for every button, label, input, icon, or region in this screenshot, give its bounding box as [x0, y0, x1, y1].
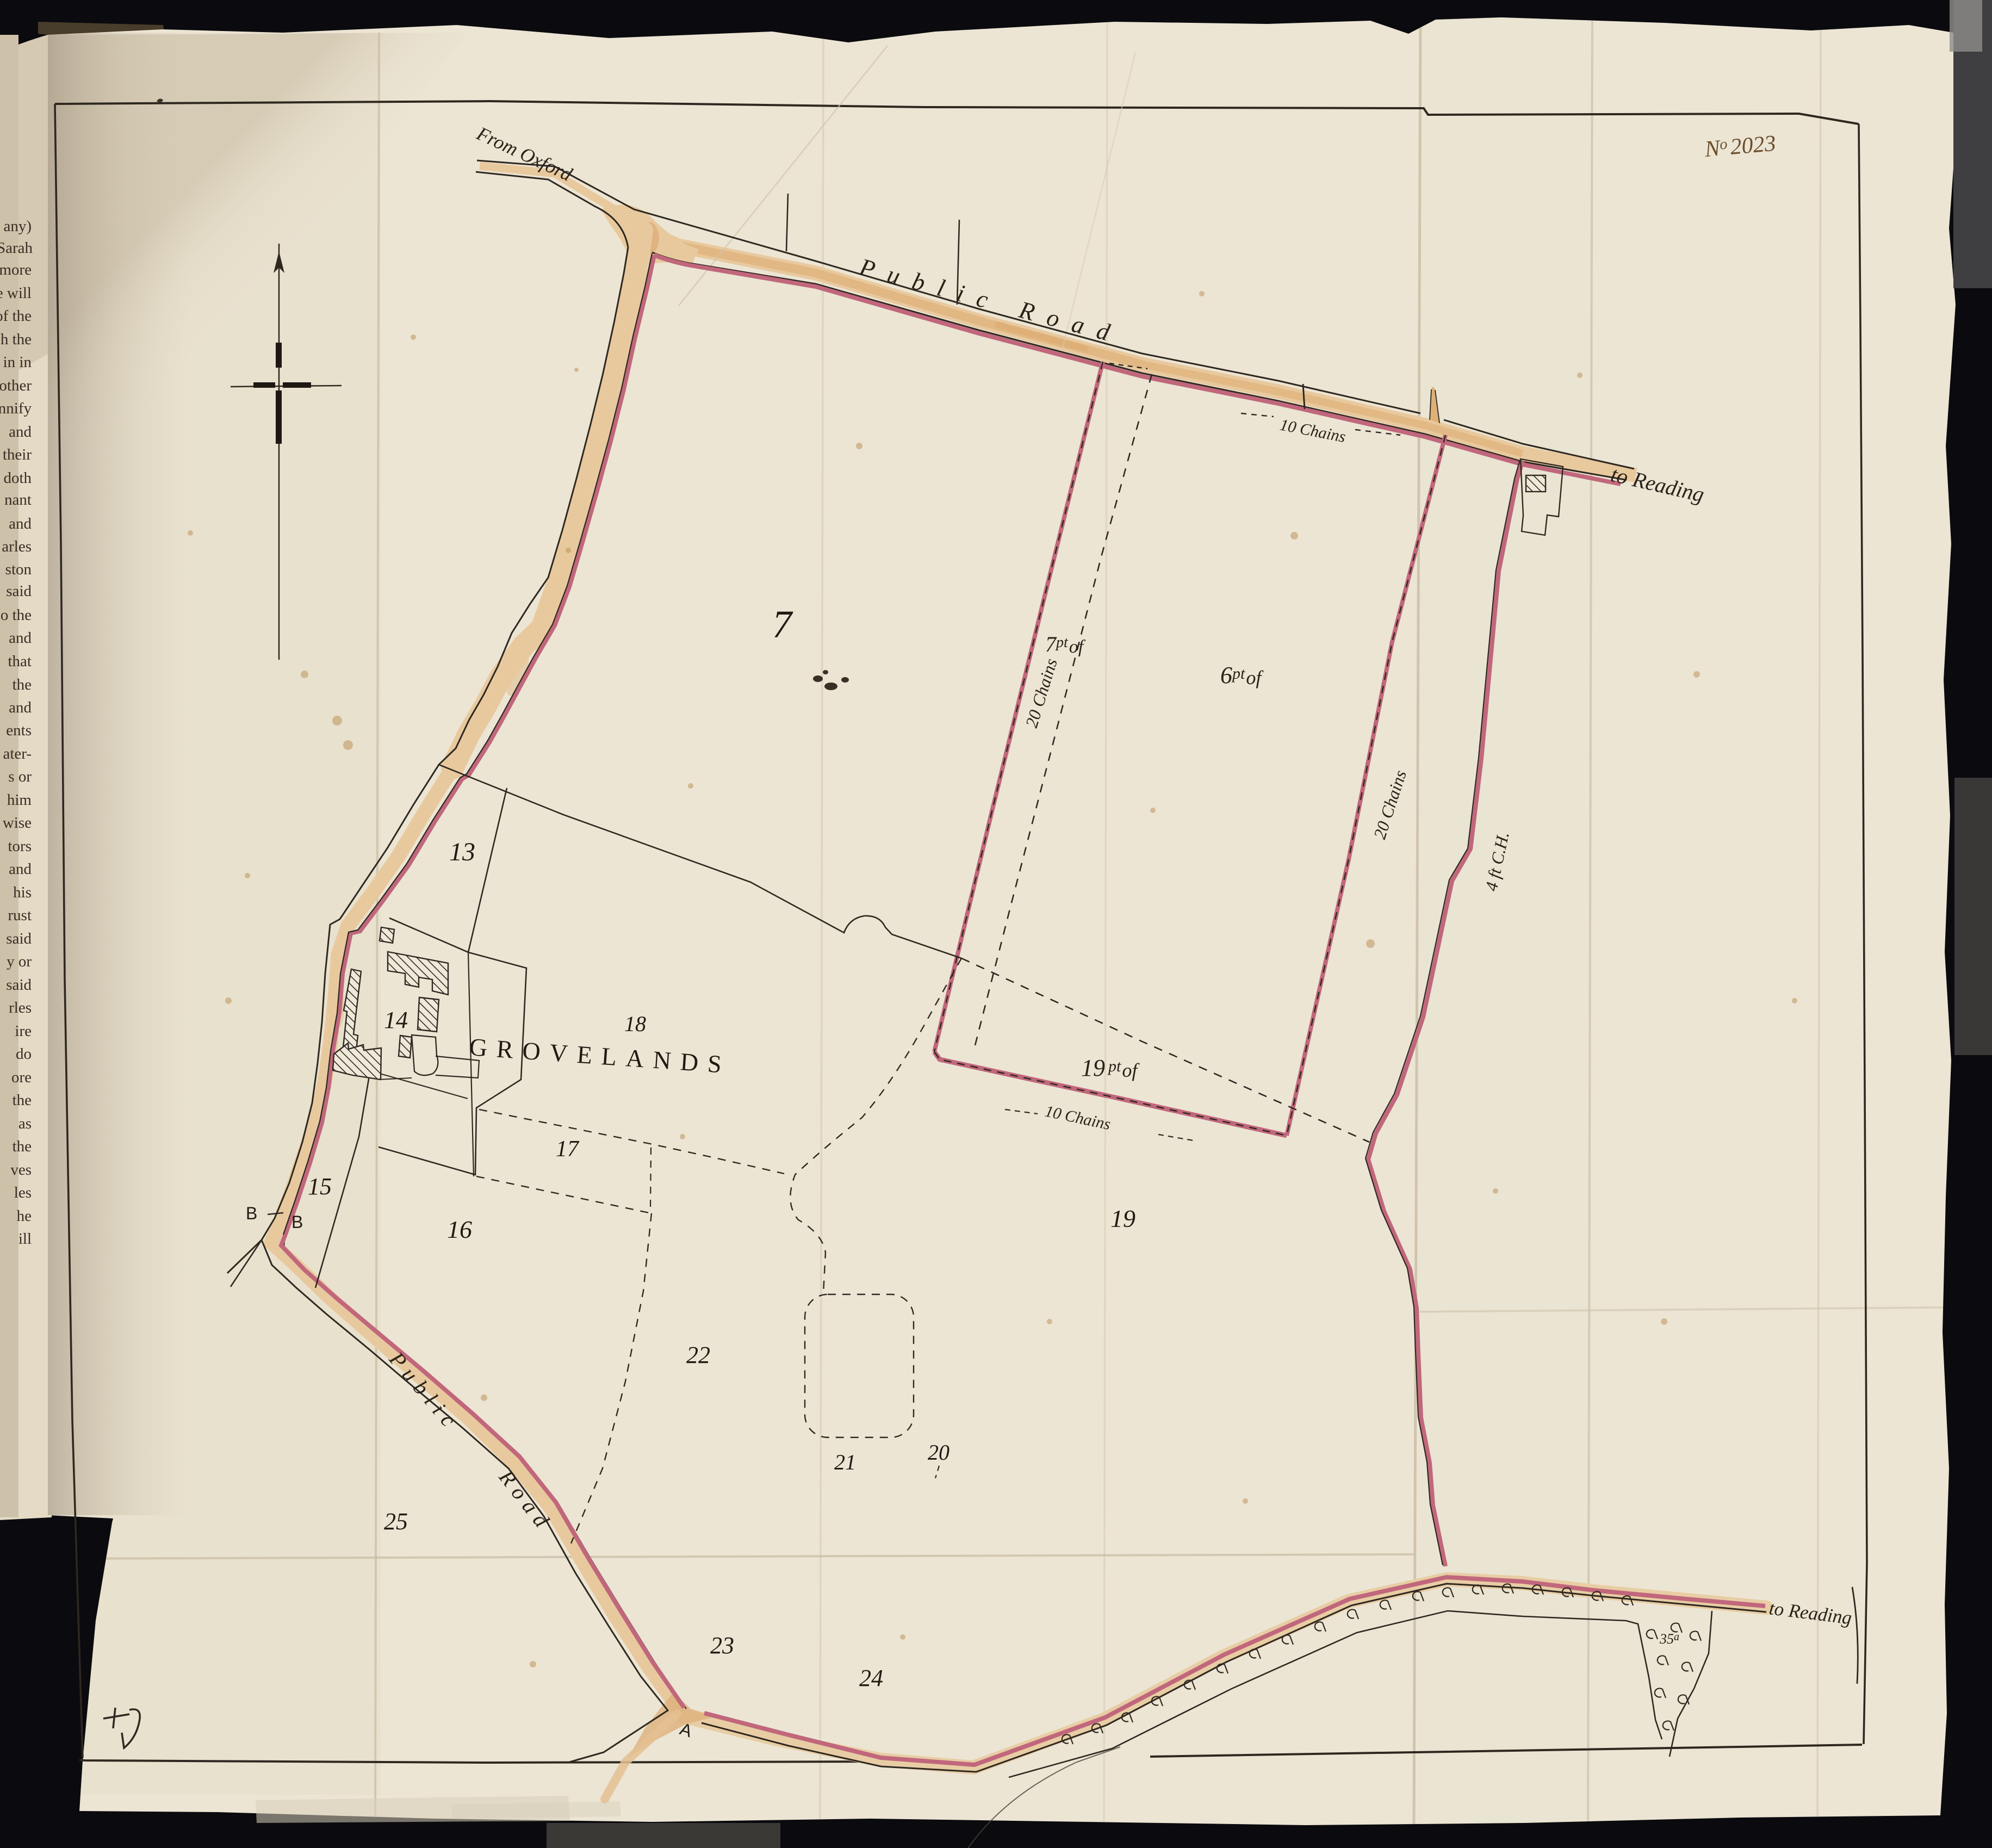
svg-text:nnify: nnify: [0, 400, 32, 417]
svg-text:and: and: [9, 699, 32, 716]
svg-text:ston: ston: [5, 561, 32, 578]
svg-text:B: B: [291, 1212, 303, 1232]
svg-text:15: 15: [308, 1173, 332, 1200]
svg-text:22: 22: [686, 1342, 710, 1368]
svg-text:21: 21: [834, 1450, 856, 1474]
svg-text:o the: o the: [1, 606, 32, 624]
svg-text:rust: rust: [8, 907, 32, 924]
svg-text:do: do: [16, 1045, 32, 1063]
svg-text:their: their: [3, 446, 32, 463]
svg-text:ire: ire: [15, 1022, 32, 1040]
svg-text:7: 7: [772, 603, 793, 646]
svg-text:y or: y or: [7, 953, 32, 970]
svg-text:20: 20: [928, 1440, 950, 1465]
svg-text:e will: e will: [0, 284, 32, 302]
svg-text:the: the: [13, 1092, 32, 1109]
svg-text:Sarah: Sarah: [0, 239, 33, 257]
svg-text:of the: of the: [0, 307, 32, 325]
svg-text:24: 24: [859, 1665, 883, 1691]
svg-text:s or: s or: [8, 768, 32, 785]
svg-text:in in: in in: [3, 354, 32, 371]
svg-text:h the: h the: [1, 331, 32, 348]
svg-text:his: his: [13, 884, 32, 901]
svg-text:19: 19: [1110, 1205, 1135, 1232]
svg-text:the: the: [13, 676, 32, 693]
svg-text:arles: arles: [2, 538, 32, 555]
svg-text:25: 25: [384, 1508, 408, 1535]
svg-text:wise: wise: [3, 814, 32, 832]
svg-text:him: him: [7, 791, 32, 809]
svg-text:more: more: [0, 261, 32, 278]
svg-text:rles: rles: [9, 999, 32, 1016]
svg-text:B: B: [246, 1204, 257, 1223]
svg-text:said: said: [6, 582, 32, 600]
svg-text:any): any): [3, 218, 32, 235]
svg-text:ill: ill: [18, 1230, 32, 1248]
svg-text:ore: ore: [11, 1069, 32, 1086]
svg-text:ents: ents: [6, 722, 32, 739]
svg-text:18: 18: [624, 1012, 646, 1036]
svg-text:16: 16: [447, 1216, 472, 1243]
svg-text:14: 14: [384, 1007, 408, 1033]
svg-text:17: 17: [556, 1137, 580, 1162]
svg-text:as: as: [18, 1115, 32, 1132]
svg-text:13: 13: [449, 838, 475, 866]
svg-text:and: and: [9, 515, 32, 532]
svg-text:ves: ves: [10, 1161, 32, 1179]
svg-text:and: and: [9, 423, 32, 441]
svg-text:nant: nant: [4, 491, 32, 508]
svg-text:said: said: [6, 930, 32, 947]
svg-text:he: he: [17, 1207, 32, 1225]
svg-text:ater-: ater-: [3, 745, 32, 762]
svg-text:tors: tors: [8, 838, 32, 855]
svg-text:the: the: [13, 1138, 32, 1155]
svg-text:les: les: [14, 1184, 32, 1201]
svg-text:that: that: [8, 653, 32, 670]
svg-text:23: 23: [710, 1632, 734, 1659]
svg-text:other: other: [0, 377, 32, 394]
svg-text:and: and: [9, 860, 32, 878]
svg-text:and: and: [9, 629, 32, 647]
svg-text:said: said: [6, 976, 32, 994]
svg-text:doth: doth: [3, 469, 32, 487]
